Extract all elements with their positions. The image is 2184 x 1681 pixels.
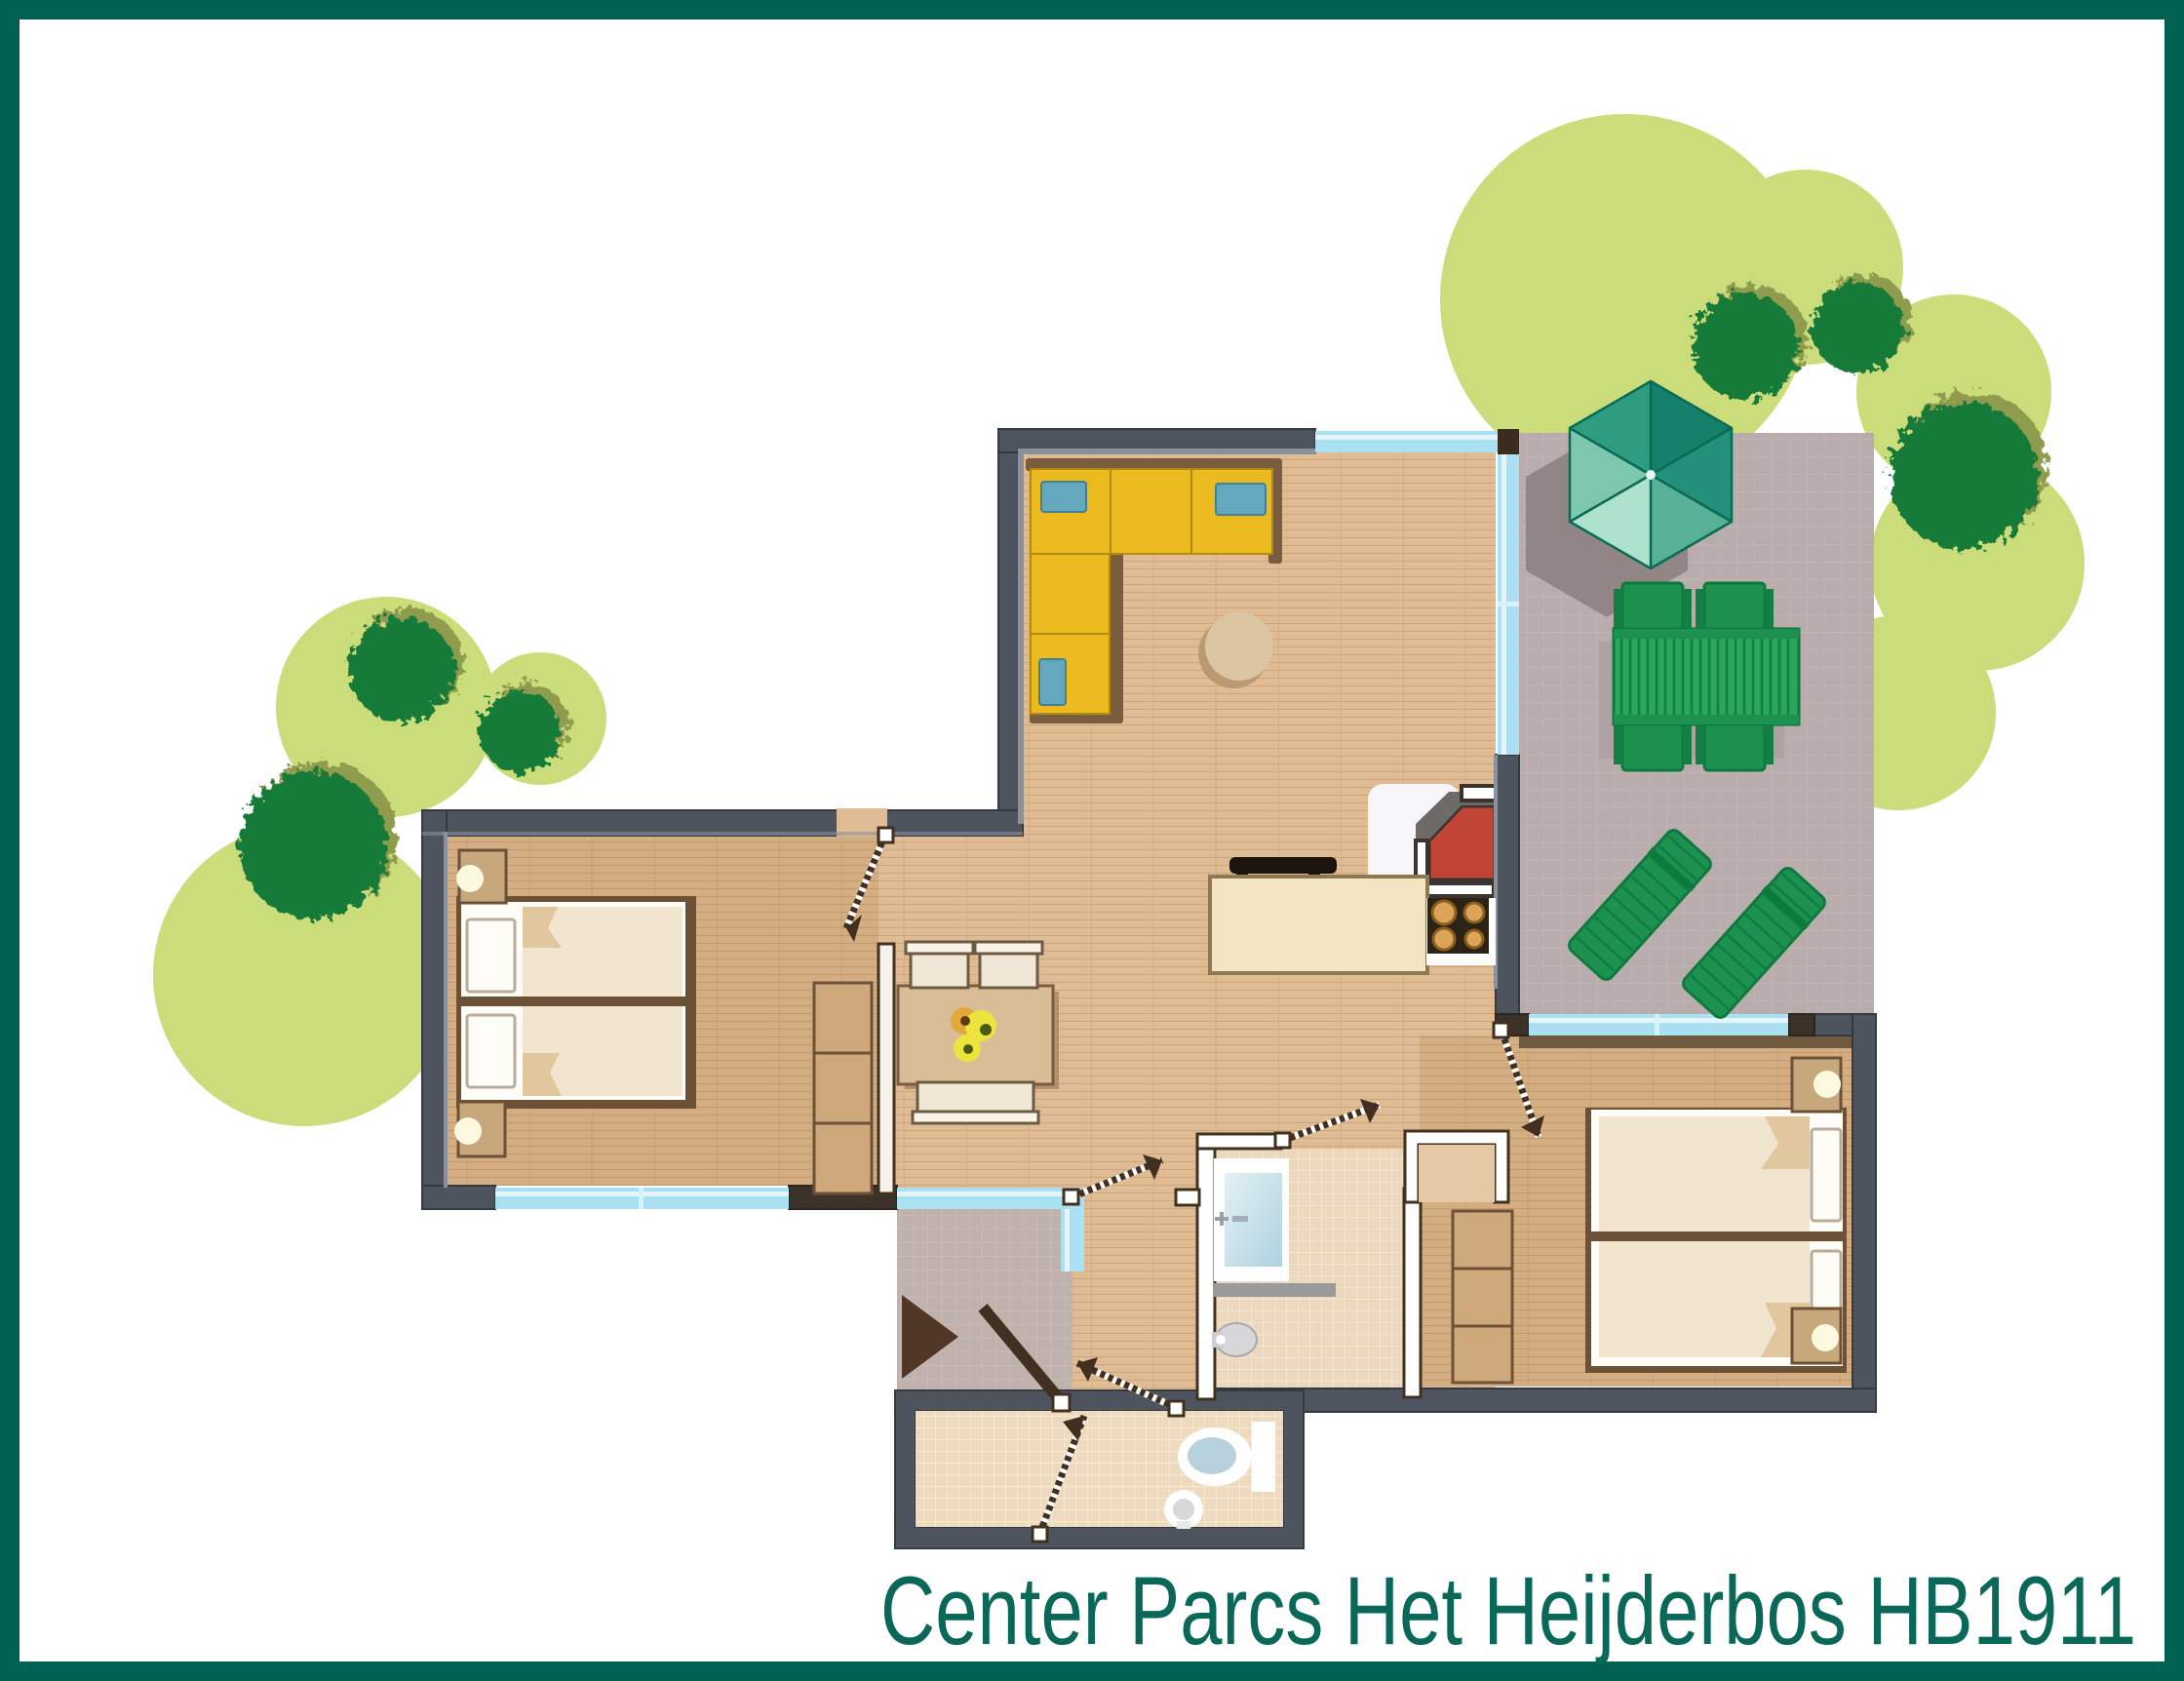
svg-text:Center Parcs Het Heijderbos HB: Center Parcs Het Heijderbos HB1911 [880, 1556, 2136, 1664]
